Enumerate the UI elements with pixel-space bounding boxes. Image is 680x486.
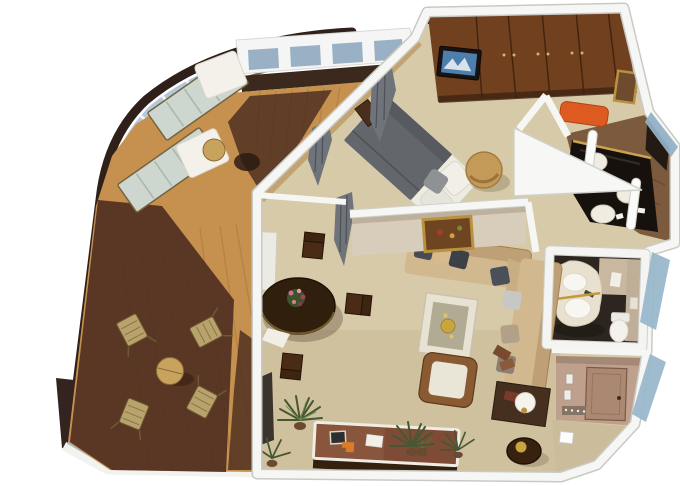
suite-floorplan-image: [0, 0, 680, 486]
wall-art-frame: [614, 71, 638, 103]
circle: [298, 302, 302, 306]
dark-side-table: [234, 153, 260, 171]
palm-pot: [453, 452, 463, 458]
vanity-amenity: [638, 208, 646, 214]
circle: [289, 291, 294, 296]
guest-basin: [562, 273, 587, 292]
painting-frame: [423, 216, 473, 251]
gold-plate: [516, 442, 527, 453]
light-switch: [566, 374, 573, 384]
painting: [423, 216, 473, 251]
side-table-lamp: [492, 381, 551, 426]
armchair: [418, 351, 478, 408]
guest-bath: [551, 254, 644, 343]
desk: [313, 422, 459, 475]
armchair-cushion: [428, 361, 468, 400]
sofa-pillow: [502, 290, 522, 310]
rect: [302, 241, 324, 259]
tv-screen: [441, 50, 477, 75]
circle: [292, 300, 296, 304]
circle: [513, 54, 516, 57]
circle: [503, 54, 506, 57]
windscreen-pane: [332, 42, 363, 64]
rect: [281, 353, 303, 371]
circle: [565, 409, 567, 411]
sink-basin: [591, 205, 615, 223]
coffee-table: [418, 293, 478, 360]
teak-side-table: [203, 139, 225, 161]
dining-chair: [280, 353, 303, 380]
palm-pot: [267, 460, 278, 467]
tv: [437, 46, 482, 80]
circle: [297, 289, 301, 293]
sofa-pillow: [490, 266, 511, 287]
door-handle: [617, 396, 621, 400]
guest-towel: [610, 272, 622, 287]
palm-pot: [406, 448, 418, 456]
circle: [571, 52, 574, 55]
circle: [583, 410, 585, 412]
circle: [537, 53, 540, 56]
desk-plant-pot: [418, 448, 427, 456]
toilet-bowl: [610, 320, 629, 343]
desk-papers: [366, 434, 383, 447]
circle: [577, 410, 579, 412]
circle: [581, 52, 584, 55]
circle: [547, 53, 550, 56]
windscreen-pane: [290, 45, 321, 67]
sofa-pillow: [500, 324, 520, 344]
palm-pot: [294, 422, 306, 430]
floor-card: [559, 431, 573, 443]
tissue-holder: [630, 297, 638, 309]
entry-top-wall: [552, 350, 648, 353]
line: [422, 436, 423, 448]
dining-chair: [302, 232, 325, 259]
circle: [301, 295, 306, 300]
windscreen-pane: [248, 48, 279, 70]
floorplan-svg: [0, 0, 680, 486]
guest-basin: [564, 298, 591, 319]
rect: [345, 293, 363, 315]
dining-chair: [345, 293, 372, 316]
circle: [571, 409, 573, 411]
layer-bathroom-guest: [551, 254, 644, 343]
light-switch: [564, 390, 571, 400]
